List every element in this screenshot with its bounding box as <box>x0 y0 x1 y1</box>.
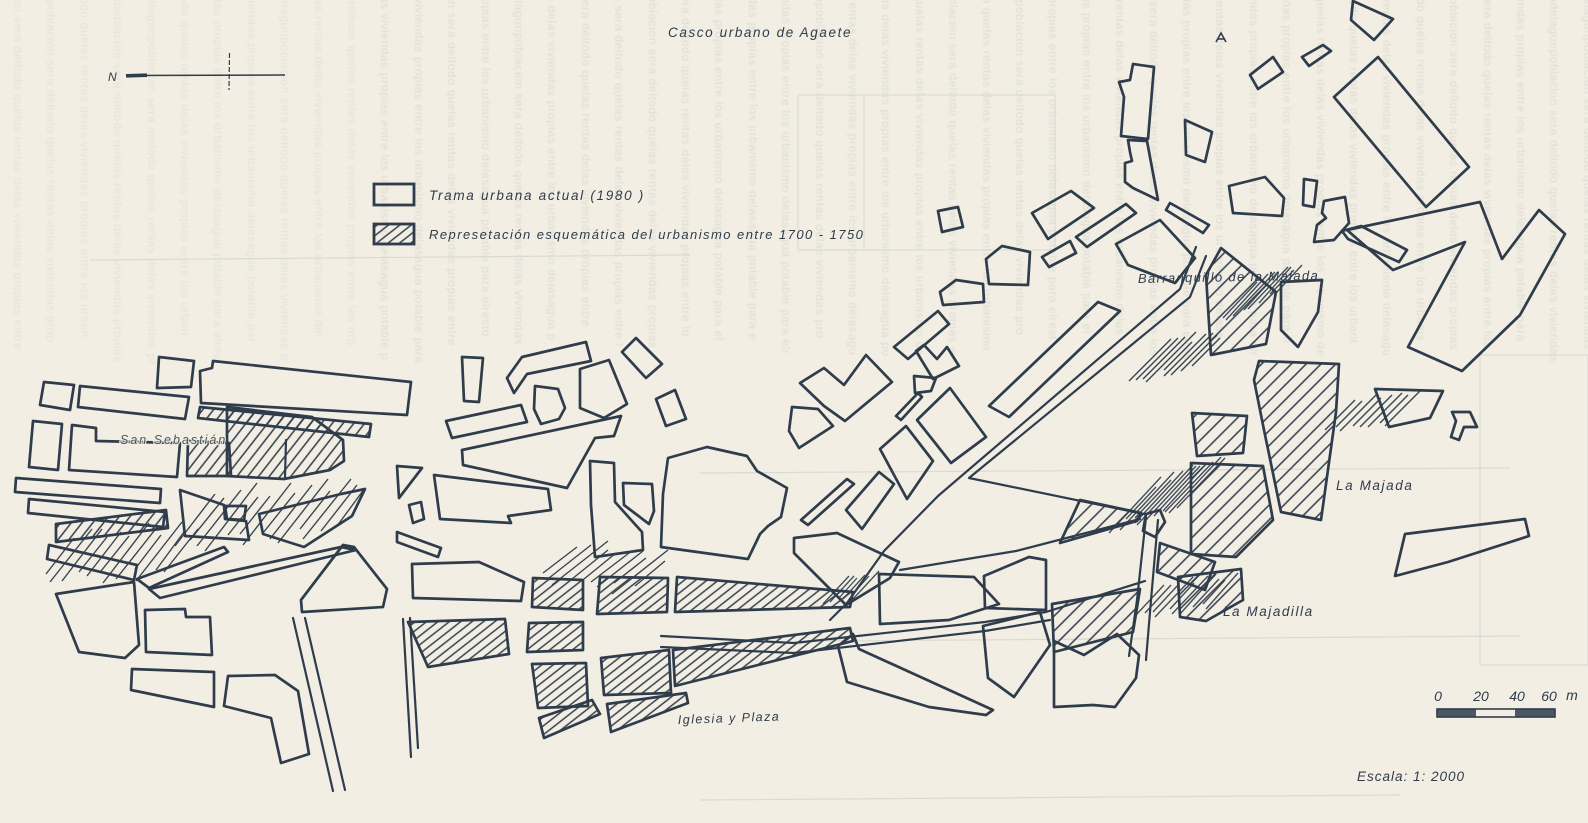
svg-text:N: N <box>108 70 117 84</box>
svg-text:cion sera deltodo quelas renta: cion sera deltodo quelas rentas delas vi… <box>579 0 593 327</box>
svg-text:Represetación esquemática del: Represetación esquemática del urbanismo … <box>429 227 864 242</box>
svg-text:0: 0 <box>1434 688 1442 704</box>
svg-text:quelas rentas delas viviendas: quelas rentas delas viviendas propias en… <box>312 0 326 338</box>
svg-text:iviendas propias entre los urb: iviendas propias entre los urbanismo del… <box>1080 0 1094 334</box>
svg-text:20: 20 <box>1472 688 1489 704</box>
svg-text:elagunpoblacion sera deltodo q: elagunpoblacion sera deltodo quelas rent… <box>813 0 827 338</box>
svg-text:poblacion sera deltodo quelas: poblacion sera deltodo quelas rentas del… <box>946 0 960 354</box>
svg-text:lagunpoblacion sera deltodo qu: lagunpoblacion sera deltodo quelas renta… <box>44 0 58 342</box>
svg-text:Casco urbano de Agaete: Casco urbano de Agaete <box>668 25 852 40</box>
svg-text:iviendas propias entre los urb: iviendas propias entre los urbanismo del… <box>712 0 726 341</box>
svg-text:o quelas rentas delas vivienda: o quelas rentas delas viviendas propias … <box>913 0 927 356</box>
svg-text:ra deltodo quelas rentas delas: ra deltodo quelas rentas delas viviendas… <box>345 0 359 346</box>
svg-text:as rentas delas viviendas prop: as rentas delas viviendas propias entre … <box>1380 0 1394 356</box>
svg-text:as rentas delas viviendas prop: as rentas delas viviendas propias entre … <box>846 0 860 355</box>
svg-text:La Majadilla: La Majadilla <box>1223 604 1314 619</box>
svg-text:ndas propias entre los urbanis: ndas propias entre los urbanismo delasag… <box>1046 0 1060 340</box>
svg-text:rentas delas viviendas propias: rentas delas viviendas propias entre los… <box>545 0 559 341</box>
svg-text:viendas propias entre los urba: viendas propias entre los urbanismo dela… <box>779 0 793 354</box>
svg-text:npoblacion sera deltodo quelas: npoblacion sera deltodo quelas rentas de… <box>646 0 660 348</box>
svg-text:eltodo quelas rentas delas viv: eltodo quelas rentas delas viviendas pro… <box>1414 0 1428 341</box>
svg-text:delagunpoblacion sera deltodo: delagunpoblacion sera deltodo quelas ren… <box>145 0 159 365</box>
svg-text:m: m <box>1566 687 1578 703</box>
svg-text:Escala: 1: 2000: Escala: 1: 2000 <box>1357 769 1465 784</box>
svg-text:deltodo quelas rentas delas vi: deltodo quelas rentas delas viviendas pr… <box>78 0 92 338</box>
svg-text:elas viviendas propias entre l: elas viviendas propias entre los urbanis… <box>378 0 392 360</box>
svg-text:endas propias entre los urbani: endas propias entre los urbanismo delasa… <box>1180 0 1194 360</box>
svg-text:bandelagunpoblacion sera delto: bandelagunpoblacion sera deltodo quelas … <box>512 0 526 345</box>
svg-text:n sera deltodo quelas rentas d: n sera deltodo quelas rentas delas vivie… <box>1481 0 1495 348</box>
svg-text:odo quelas rentas delas vivien: odo quelas rentas delas viviendas propia… <box>980 0 994 351</box>
svg-text:Trama urbana actual (1980 ): Trama urbana actual (1980 ) <box>429 188 645 203</box>
svg-text:acion sera deltodo quelas rent: acion sera deltodo quelas rentas delas v… <box>11 0 25 350</box>
svg-text:unpoblacion sera deltodo quela: unpoblacion sera deltodo quelas rentas d… <box>111 0 125 363</box>
svg-text:s viviendas propias entre los: s viviendas propias entre los urbanismo … <box>1514 0 1528 342</box>
svg-text:deltodo quelas rentas delas vi: deltodo quelas rentas delas viviendas pr… <box>178 0 192 336</box>
svg-text:andelagunpoblacion sera deltod: andelagunpoblacion sera deltodo quelas r… <box>1547 0 1561 362</box>
svg-text:cion sera deltodo quelas renta: cion sera deltodo quelas rentas delas vi… <box>445 0 459 346</box>
svg-text:Barranquillo de la Majada: Barranquillo de la Majada <box>1138 268 1319 286</box>
svg-text:s viviendas propias entre los: s viviendas propias entre los urbanismo … <box>412 0 426 364</box>
svg-text:deltodo quelas rentas delas vi: deltodo quelas rentas delas viviendas pr… <box>1347 0 1361 343</box>
svg-text:ion sera deltodo quelas rentas: ion sera deltodo quelas rentas delas viv… <box>612 0 626 347</box>
svg-text:entas delas viviendas propias: entas delas viviendas propias entre los … <box>879 0 893 357</box>
svg-text:on sera deltodo quelas rentas: on sera deltodo quelas rentas delas vivi… <box>679 0 693 337</box>
svg-text:60: 60 <box>1541 688 1557 704</box>
svg-text:La Majada: La Majada <box>1336 478 1413 493</box>
svg-text:andelagunpoblacion sera deltod: andelagunpoblacion sera deltodo quelas r… <box>1581 0 1588 350</box>
svg-text:endas propias entre los urbani: endas propias entre los urbanismo delasa… <box>211 0 225 360</box>
svg-text:das propias entre los urbanism: das propias entre los urbanismo delasagu… <box>479 0 493 337</box>
svg-text:40: 40 <box>1509 688 1525 704</box>
svg-text:as viviendas propias entre los: as viviendas propias entre los urbanismo… <box>245 0 259 343</box>
svg-text:ndelagunpoblacion sera deltodo: ndelagunpoblacion sera deltodo quelas re… <box>278 0 292 361</box>
svg-text:San Sebastián: San Sebastián <box>120 433 227 447</box>
svg-text:viviendas propias entre los ur: viviendas propias entre los urbanismo de… <box>746 0 760 340</box>
